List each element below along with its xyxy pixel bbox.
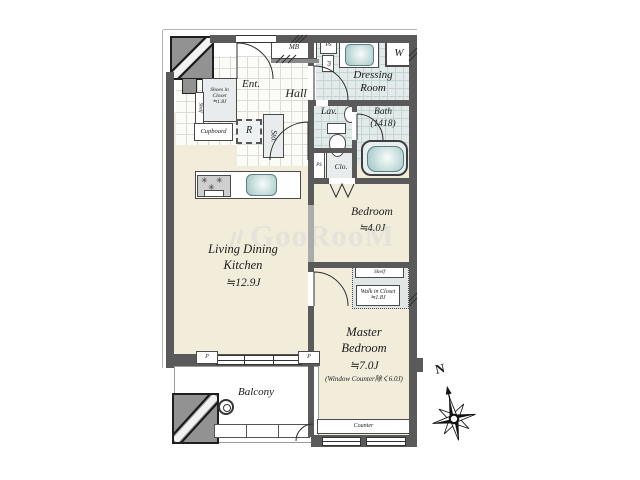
ldk-size-label: ≒12.9J — [188, 277, 298, 289]
master-bedroom-label-2: Bedroom — [318, 342, 410, 355]
door-swing-arcs — [0, 0, 640, 480]
bath-label-1: Bath — [360, 108, 406, 118]
north-label: N — [431, 360, 449, 377]
master-bedroom-label-1: Master — [318, 326, 410, 339]
floor-plan: GooRooM Shelf Walk in Closet ≒1.8J ✳ ✳ ✳… — [0, 0, 640, 480]
ldk-label-2: Kitchen — [188, 259, 298, 272]
bedroom-label: Bedroom — [330, 206, 414, 218]
hall-label: Hall — [276, 87, 316, 100]
balcony-label: Balcony — [226, 387, 286, 399]
entrance-label: Ent. — [236, 79, 266, 91]
bath-label-2: (1418) — [358, 120, 408, 130]
compass-rose-icon — [427, 380, 481, 446]
lavatory-label: Lav. — [314, 108, 344, 118]
ldk-label-1: Living Dining — [188, 243, 298, 256]
dressing-room-label-2: Room — [340, 83, 406, 95]
bedroom-size-label: ≒4.0J — [330, 223, 414, 234]
dressing-room-label-1: Dressing — [340, 70, 406, 82]
master-bedroom-note-label: (Window Counter除く6.0J) — [310, 376, 418, 383]
master-bedroom-size-label: ≒7.0J — [318, 360, 410, 372]
